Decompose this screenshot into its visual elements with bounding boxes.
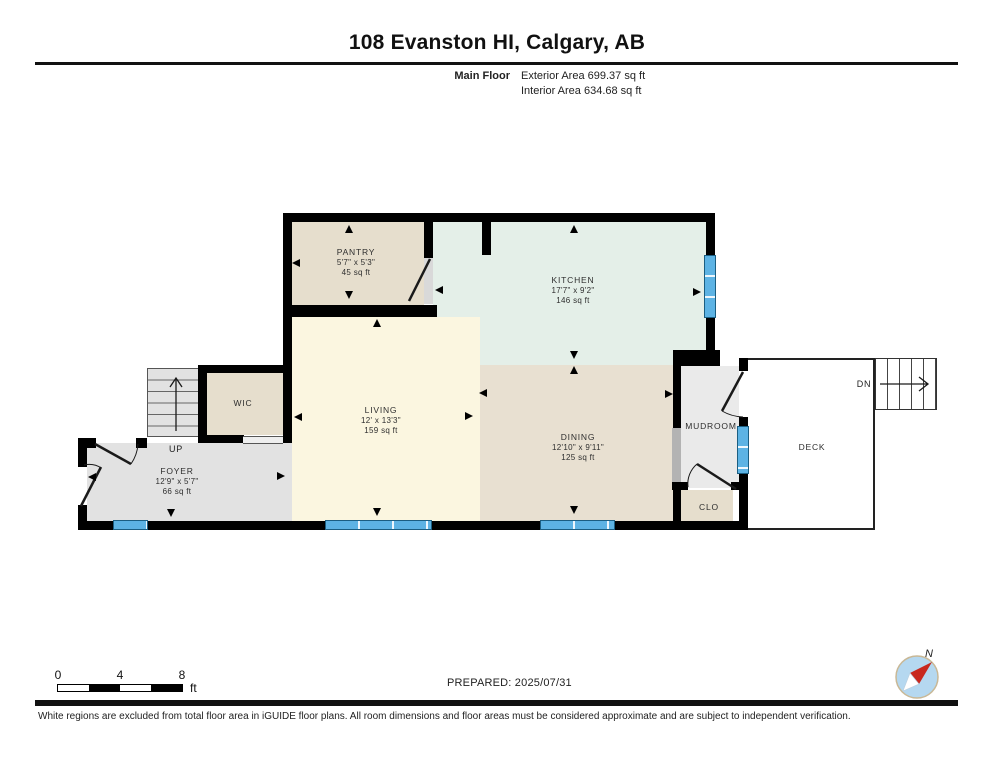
scale-bar [57,684,183,692]
wall-pantry-right [424,213,433,258]
scale-segment [89,685,120,691]
dimension-arrow-icon [373,319,381,327]
dimension-arrow-icon [570,506,578,514]
dimension-arrow-icon [345,291,353,299]
kitchen-dims: 17'7" x 9'2" [551,286,594,295]
dimension-arrow-icon [88,473,96,481]
mudroom-window [737,426,749,474]
stairs-up-label: UP [169,444,183,454]
room-label-deck: DECK [799,442,826,452]
dimension-arrow-icon [294,413,302,421]
dimension-arrow-icon [345,225,353,233]
room-label-wic: WIC [234,398,253,408]
dining-name: DINING [552,432,604,442]
foyer-name: FOYER [155,466,198,476]
wic-door-opening [243,436,283,444]
living-name: LIVING [361,405,401,415]
mudroom-door-panel [672,428,681,487]
kitchen-name: KITCHEN [551,275,594,285]
prepared-date-text: PREPARED: 2025/07/31 [447,677,572,689]
scale-label-0: 0 [55,668,62,682]
page-title: 108 Evanston HI, Calgary, AB [0,31,994,55]
dimension-arrow-icon [570,366,578,374]
dimension-arrow-icon [373,508,381,516]
dimension-arrow-icon [570,225,578,233]
footer-divider [35,700,958,706]
pantry-door-jamb [424,258,433,304]
kitchen-window [704,255,716,318]
dining-dims: 12'10" x 9'11" [552,443,604,452]
dimension-arrow-icon [465,412,473,420]
mudroom-name: MUDROOM [685,421,736,431]
scale-label-8: 8 [179,668,186,682]
pantry-name: PANTRY [337,247,376,257]
wall-kitchen-stub [482,213,491,255]
scale-segment [58,685,89,691]
living-dims: 12' x 13'3" [361,416,401,425]
wall-foyer-top-right [136,438,147,448]
room-label-dining: DINING 12'10" x 9'11" 125 sq ft [552,432,604,462]
mudroom-door-opening [739,371,748,417]
wall-wic-top [198,365,292,373]
dimension-arrow-icon [665,390,673,398]
closet-name: CLO [699,502,719,512]
scale-label-4: 4 [117,668,124,682]
wall-closet-top-left [672,482,688,490]
dimension-arrow-icon [277,472,285,480]
dining-window [540,520,615,530]
wall-top [283,213,715,222]
wall-wic-left [198,365,207,443]
compass-north-label: N [925,648,933,660]
dimension-arrow-icon [167,509,175,517]
room-label-kitchen: KITCHEN 17'7" x 9'2" 146 sq ft [551,275,594,305]
wall-mudroom-dining [673,358,681,428]
pantry-dims: 5'7" x 5'3" [337,258,376,267]
wall-pantry-bottom [283,305,437,317]
wic-name: WIC [234,398,253,408]
floor-label: Main Floor [380,70,510,82]
dimension-arrow-icon [292,259,300,267]
dimension-arrow-icon [693,288,701,296]
pantry-area: 45 sq ft [337,268,376,277]
deck-stairs-down [875,358,937,410]
deck-name: DECK [799,442,826,452]
interior-area-text: Interior Area 634.68 sq ft [521,85,641,97]
wall-wic-bottom [198,435,244,443]
room-label-pantry: PANTRY 5'7" x 5'3" 45 sq ft [337,247,376,277]
foyer-area: 66 sq ft [155,487,198,496]
dimension-arrow-icon [435,286,443,294]
interior-stairs-up [147,368,205,437]
room-label-foyer: FOYER 12'9" x 5'7" 66 sq ft [155,466,198,496]
dining-area: 125 sq ft [552,453,604,462]
foyer-window [113,520,148,530]
room-label-closet: CLO [699,502,719,512]
scale-unit-label: ft [190,681,197,695]
kitchen-area: 146 sq ft [551,296,594,305]
wall-left-upper [283,213,292,443]
room-label-living: LIVING 12' x 13'3" 159 sq ft [361,405,401,435]
header-divider [35,62,958,65]
disclaimer-text: White regions are excluded from total fl… [38,711,958,722]
floorplan-page: 108 Evanston HI, Calgary, AB Main Floor … [0,0,994,768]
wall-closet-top-right [731,482,748,490]
wall-foyer-left-upper [78,438,87,467]
scale-segment [120,685,151,691]
foyer-dims: 12'9" x 5'7" [155,477,198,486]
room-label-mudroom: MUDROOM [685,421,736,431]
dimension-arrow-icon [479,389,487,397]
scale-segment [151,685,182,691]
living-window [325,520,432,530]
living-area: 159 sq ft [361,426,401,435]
dimension-arrow-icon [570,351,578,359]
stairs-down-label: DN [857,379,872,389]
exterior-area-text: Exterior Area 699.37 sq ft [521,70,645,82]
